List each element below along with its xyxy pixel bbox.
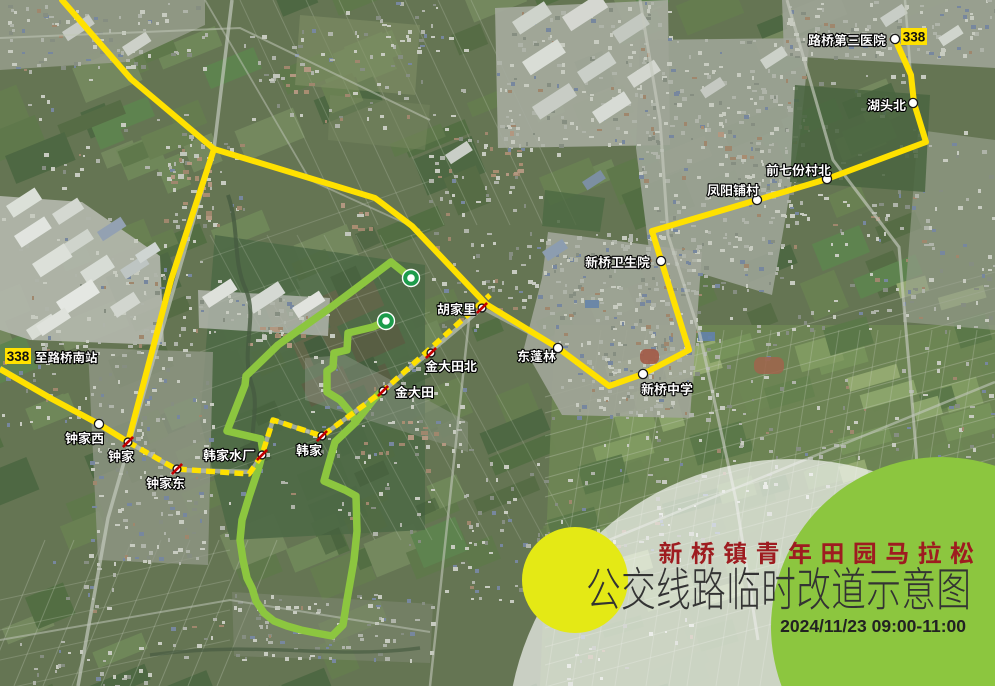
svg-text:338: 338 — [7, 349, 30, 364]
svg-text:338: 338 — [903, 30, 926, 45]
svg-text:2024/11/23 09:00-11:00: 2024/11/23 09:00-11:00 — [780, 616, 966, 636]
